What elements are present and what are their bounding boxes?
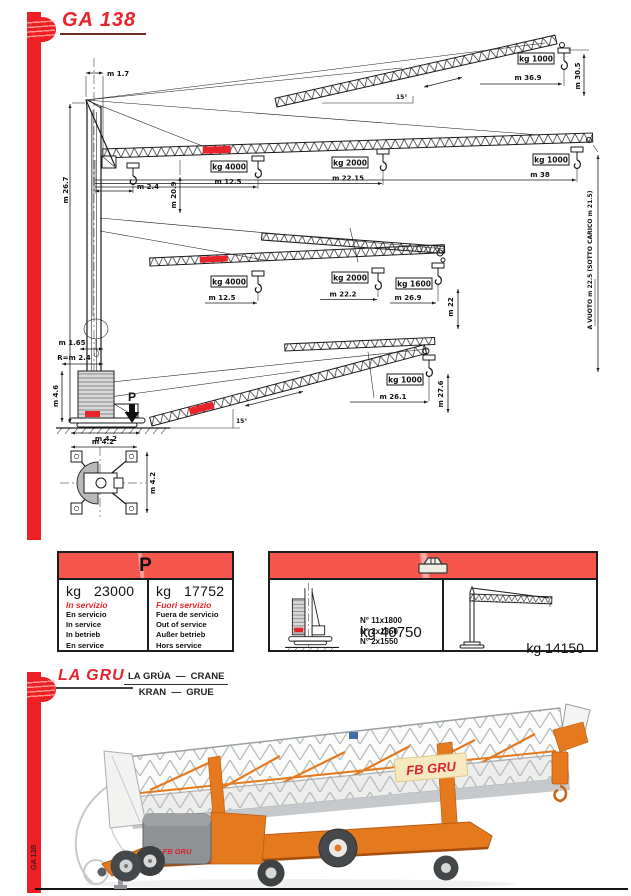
radius-label: m 36.9: [514, 74, 541, 82]
load-label: kg 1000: [388, 375, 422, 384]
dim-mast-width: m 1.65: [58, 339, 85, 347]
out-of-service-weight: kg 17752: [156, 583, 232, 599]
ballast-block-icon: [415, 556, 451, 576]
dim-tail-radius: R=m 2.4: [57, 354, 91, 362]
crane-load-diagram: 15° kg 1000 m 36.9 m 30.5 m 2.4 m 12.5 m…: [0, 0, 631, 545]
ballast-total-weight: kg 40750: [360, 624, 422, 641]
jib-config-low: 15° kg 1000 m 26.1 m 27.6: [150, 337, 448, 428]
in-service-label: In service: [66, 620, 147, 630]
subtitle-line1: LA GRÚA — CRANE: [124, 671, 228, 685]
ballast-table-header: [270, 553, 596, 580]
out-of-service-label: Außer betrieb: [156, 630, 232, 640]
radius-label: m 22.2: [329, 291, 356, 299]
crane-weight-value: kg 14150: [526, 640, 584, 656]
in-service-weight: kg 23000: [66, 583, 147, 599]
gru-section-title: LA GRU: [56, 667, 133, 689]
load-label: kg 1000: [519, 54, 553, 63]
weight-symbol: P: [139, 555, 152, 577]
height-label: m 22: [447, 297, 455, 317]
crane-weight-cell: kg 14150: [444, 580, 596, 650]
hook-height-label: m 20.9: [170, 181, 178, 208]
out-of-service-label: Hors service: [156, 641, 232, 651]
dim-plan-depth: m 4.2: [149, 472, 157, 494]
jib-config-mid: m 12.5 m 22.2 m 26.9 kg 4000 kg 2000 kg …: [150, 228, 458, 329]
angle-label: 15°: [396, 94, 407, 101]
ballast-cell: N° 11x1800 N° 2x1850 N° 2x1550 kg 40750: [270, 580, 444, 650]
load-label: kg 2000: [333, 158, 367, 167]
load-label: kg 1000: [534, 155, 568, 164]
radius-label: m 26.1: [379, 393, 406, 401]
crane-transport-photo: FB GRU FB GRU: [0, 696, 631, 896]
radius-label: m 12.5: [208, 294, 235, 302]
weight-table-header: P: [59, 553, 232, 580]
weight-table: P kg 23000 In servizio En servicio In se…: [57, 551, 234, 652]
out-of-service-label-it: Fuori servizio: [156, 600, 232, 610]
dim-top-offset: m 1.7: [107, 70, 129, 78]
dim-apex-height: m 26.7: [62, 176, 70, 203]
in-service-label: En servicio: [66, 610, 147, 620]
angle-label: 15°: [236, 418, 247, 425]
ground-shadow: [85, 879, 515, 889]
blue-fitting: [349, 732, 358, 739]
out-of-service-label: Out of service: [156, 620, 232, 630]
out-of-service-cell: kg 17752 Fuori servizio Fuera de servici…: [149, 580, 232, 650]
ballast-block: [78, 371, 114, 418]
height-label: m 30.5: [574, 62, 582, 89]
tip-height-note: A VUOTO m 22.5 (SOTTO CARICO m 21.5): [587, 190, 594, 329]
brand-box-logo: FB GRU: [163, 847, 192, 856]
dim-ballast-height: m 4.6: [52, 385, 60, 407]
load-label: kg 2000: [333, 273, 367, 282]
base-plan-view: m 4.2 m 4.2: [60, 438, 157, 517]
radius-label: m 12.5: [214, 178, 241, 186]
height-label: m 27.6: [437, 380, 445, 407]
out-of-service-label: Fuera de servicio: [156, 610, 232, 620]
datasheet-page: { "page": { "bottom_tab": "GA 138" }, "c…: [0, 0, 631, 896]
load-label: kg 4000: [212, 162, 246, 171]
ballast-crane-sketch-icon: [278, 581, 348, 651]
radius-label: m 38: [530, 171, 550, 179]
load-symbol: P: [128, 390, 136, 404]
ballast-table: N° 11x1800 N° 2x1850 N° 2x1550 kg 40750 …: [268, 551, 598, 652]
radius-label: m 26.9: [394, 294, 421, 302]
in-service-label: In betrieb: [66, 630, 147, 640]
load-label: kg 1600: [397, 279, 431, 288]
in-service-label: En service: [66, 641, 147, 651]
gru-section-subtitle: LA GRÚA — CRANE KRAN — GRUE: [124, 671, 228, 698]
jib-config-top: 15° kg 1000 m 36.9 m 30.5: [275, 35, 589, 107]
radius-label: m 22.15: [332, 175, 364, 183]
mast-assembly: m 1.7 m 26.7 m 1.65 R=m 2.4 m 4.6 m 4.2 …: [52, 58, 170, 443]
load-label: kg 4000: [212, 277, 246, 286]
in-service-label-it: In servizio: [66, 600, 147, 610]
in-service-cell: kg 23000 In servizio En servicio In serv…: [59, 580, 149, 650]
tow-hitch: [98, 868, 107, 877]
dim-plan-width: m 4.2: [92, 438, 114, 446]
